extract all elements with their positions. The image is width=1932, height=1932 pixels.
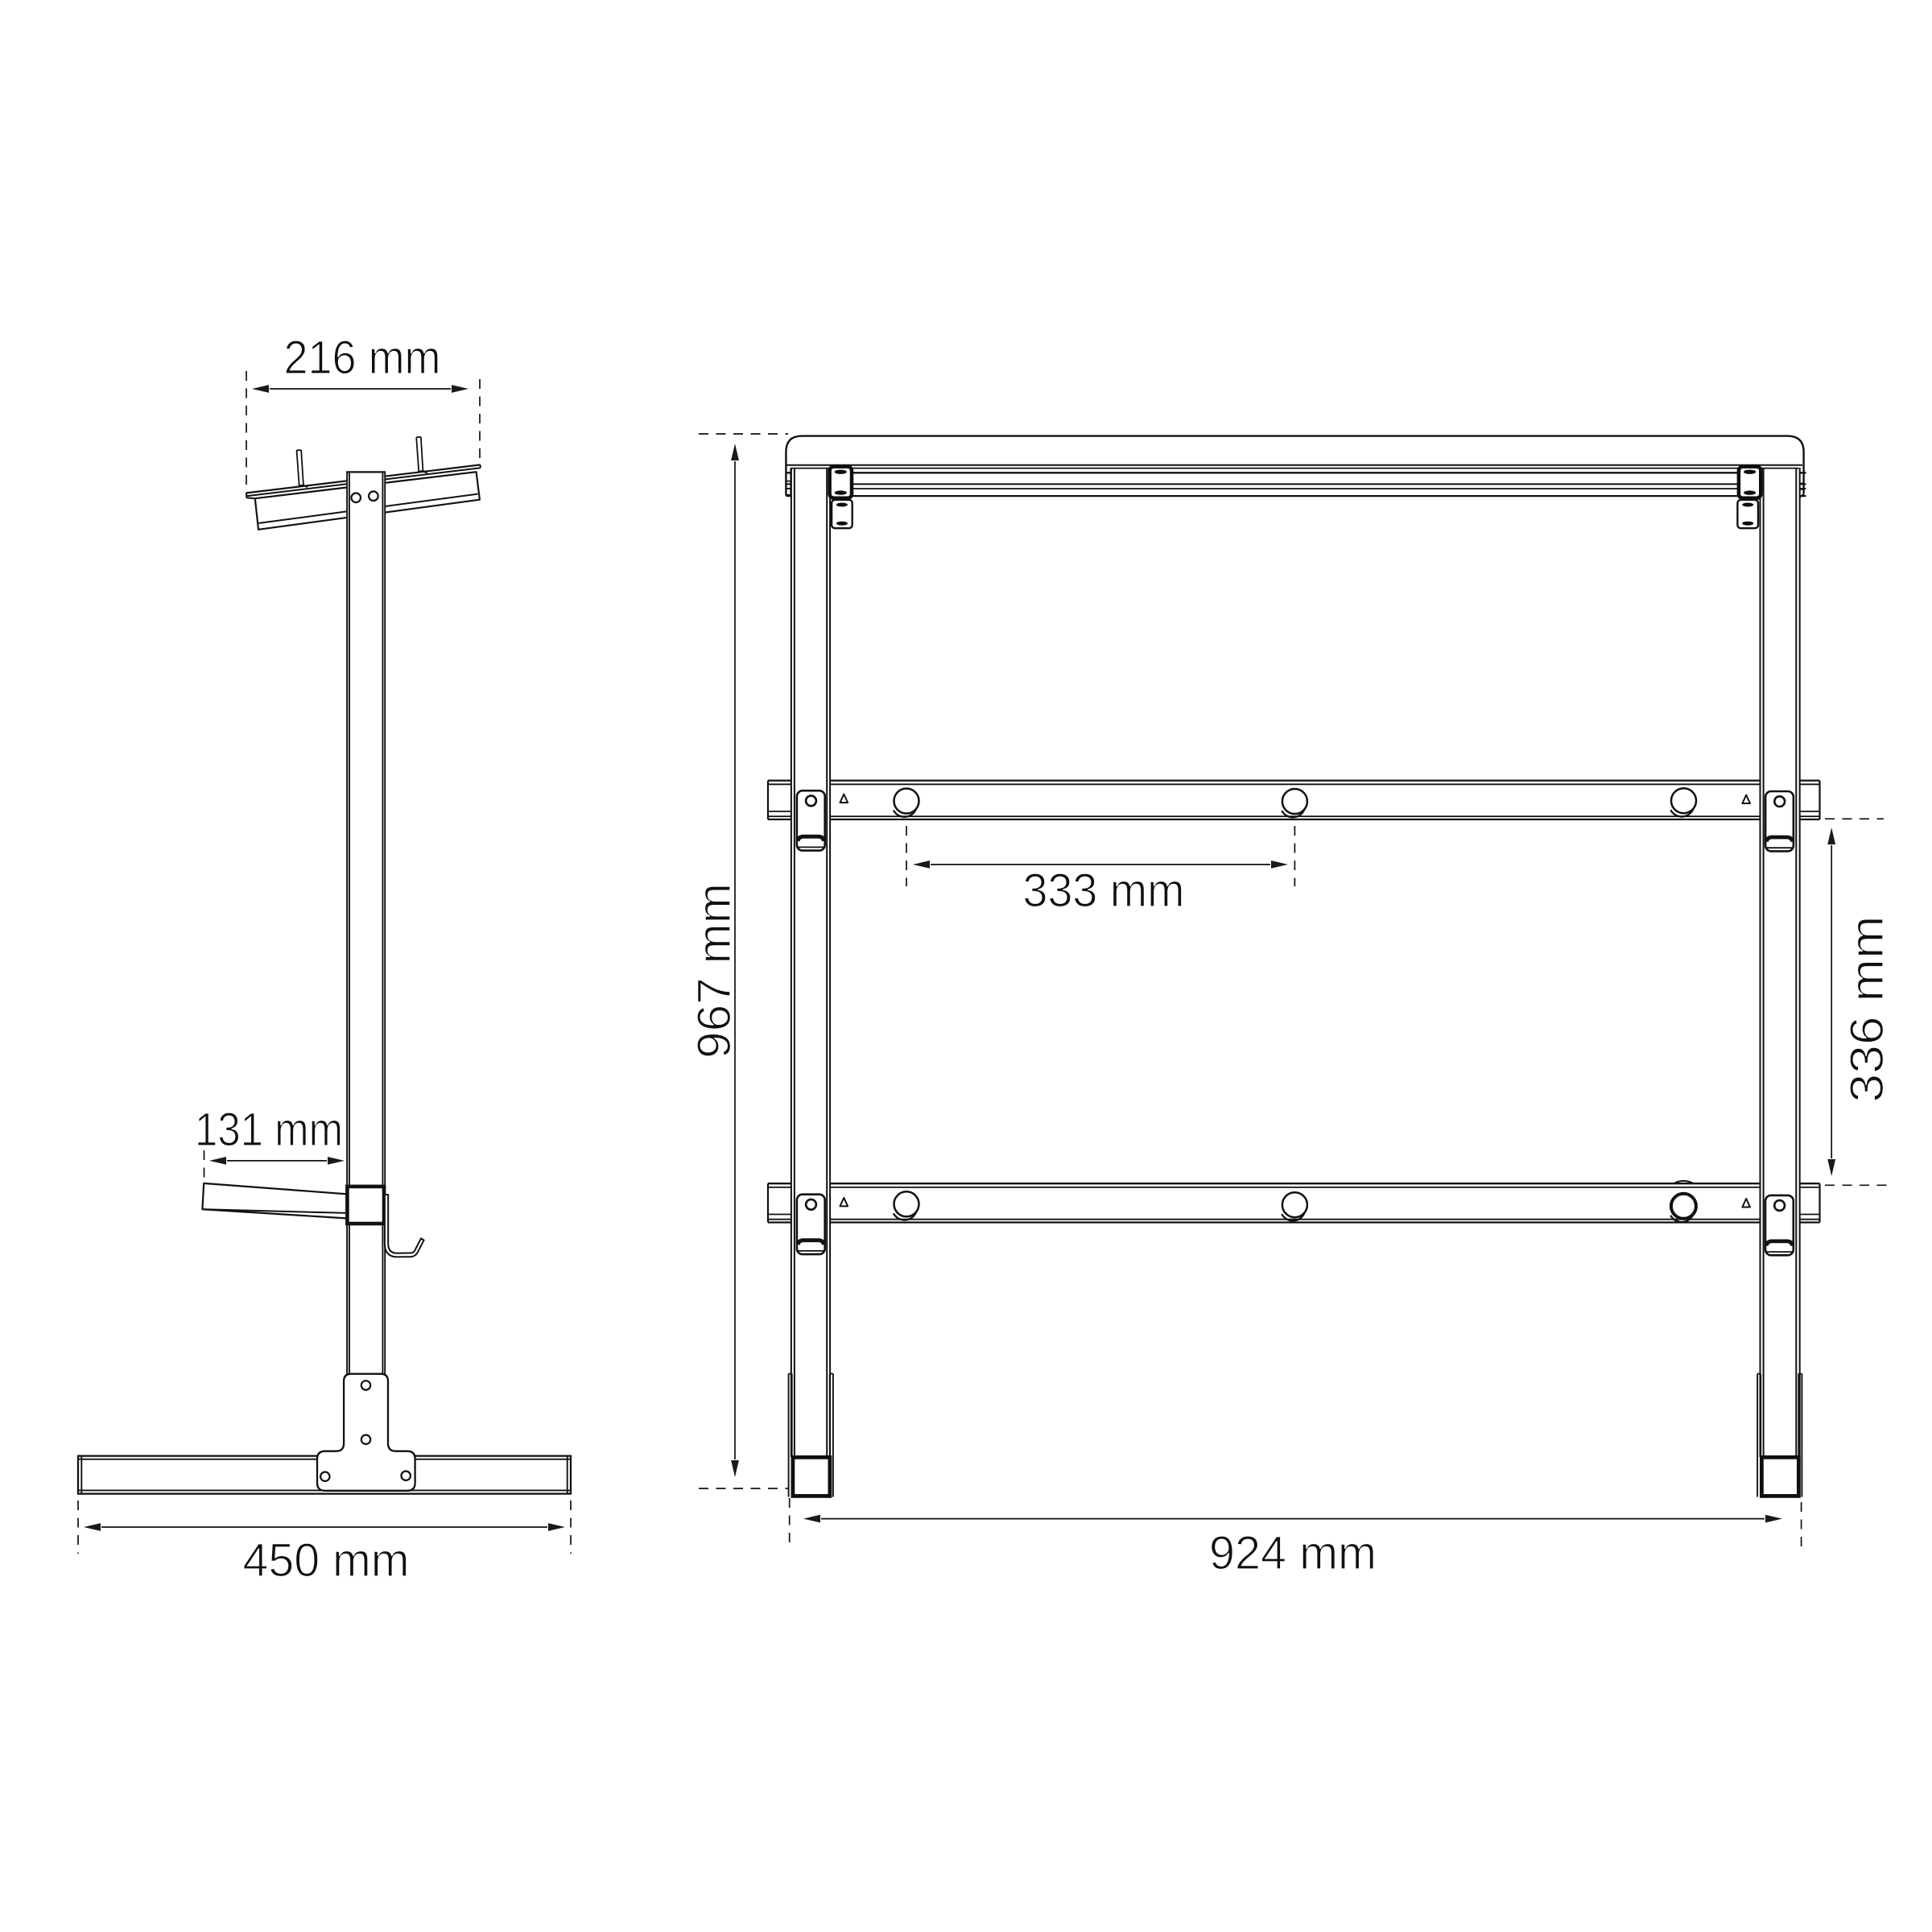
svg-text:450 mm: 450 mm bbox=[243, 1534, 410, 1587]
svg-text:333 mm: 333 mm bbox=[1023, 865, 1185, 917]
svg-text:336 mm: 336 mm bbox=[1841, 916, 1893, 1103]
svg-text:216 mm: 216 mm bbox=[284, 332, 441, 384]
svg-text:967 mm: 967 mm bbox=[688, 883, 741, 1059]
svg-text:924 mm: 924 mm bbox=[1209, 1527, 1377, 1579]
svg-text:131 mm: 131 mm bbox=[195, 1104, 343, 1156]
